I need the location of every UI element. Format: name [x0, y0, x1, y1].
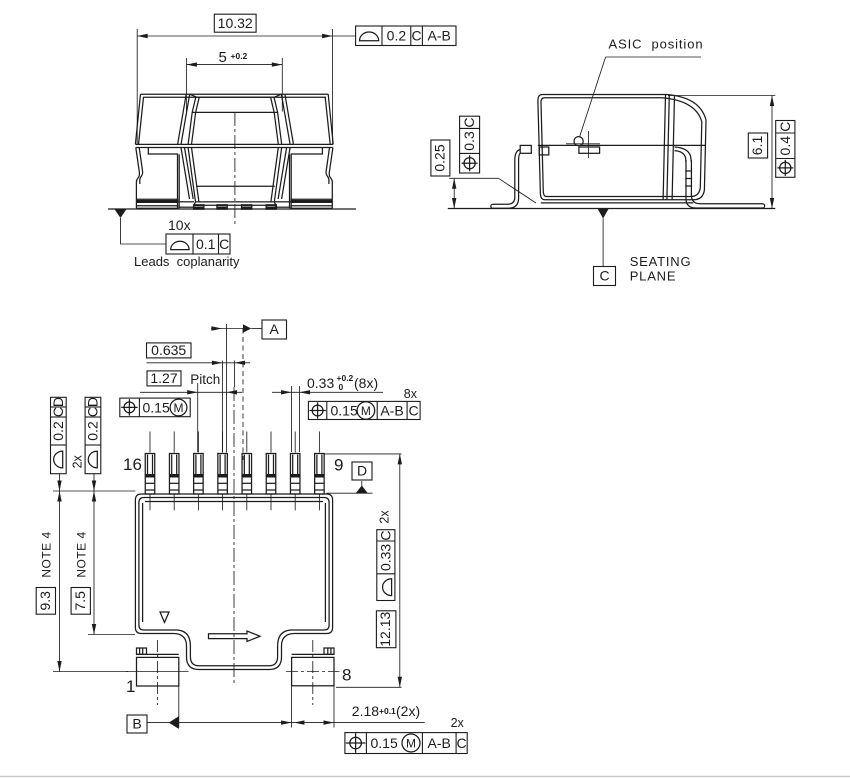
svg-text:NOTE 4: NOTE 4: [74, 531, 88, 577]
svg-text:8: 8: [342, 666, 351, 685]
svg-text:C: C: [599, 268, 609, 284]
svg-text:D: D: [50, 397, 66, 407]
svg-text:A-B: A-B: [428, 735, 451, 751]
svg-text:C: C: [777, 122, 793, 132]
svg-text:0.2: 0.2: [50, 421, 66, 441]
svg-text:0: 0: [339, 382, 344, 392]
svg-text:D: D: [357, 463, 367, 479]
svg-text:2x: 2x: [451, 716, 465, 730]
svg-text:B: B: [132, 716, 141, 732]
svg-text:0.635: 0.635: [151, 342, 186, 358]
svg-text:0.2: 0.2: [387, 28, 407, 44]
svg-text:2x: 2x: [70, 454, 84, 468]
svg-text:PLANE: PLANE: [630, 269, 677, 284]
svg-text:M: M: [361, 404, 371, 418]
svg-text:C: C: [412, 28, 422, 44]
svg-text:C: C: [50, 407, 66, 417]
svg-text:0.15: 0.15: [331, 403, 358, 419]
svg-text:0.3: 0.3: [461, 131, 477, 151]
svg-text:0.15: 0.15: [371, 735, 398, 751]
svg-text:5: 5: [219, 49, 227, 66]
svg-text:NOTE 4: NOTE 4: [40, 531, 54, 577]
svg-text:M: M: [406, 737, 416, 751]
svg-text:0.33: 0.33: [307, 375, 334, 391]
svg-text:0.1: 0.1: [196, 236, 216, 252]
svg-text:C: C: [461, 117, 477, 127]
svg-text:7.5: 7.5: [72, 591, 88, 611]
svg-text:(8x): (8x): [354, 375, 378, 391]
svg-text:C: C: [409, 403, 419, 419]
svg-text:2.18: 2.18: [352, 703, 379, 719]
svg-text:16: 16: [123, 455, 142, 474]
svg-text:8x: 8x: [404, 387, 418, 401]
svg-text:0.33: 0.33: [378, 544, 394, 571]
svg-text:M: M: [174, 401, 184, 415]
svg-text:0.15: 0.15: [143, 400, 170, 416]
svg-text:6.1: 6.1: [749, 136, 765, 156]
svg-text:10x: 10x: [168, 217, 191, 233]
svg-text:C: C: [219, 236, 229, 252]
svg-text:+0.2: +0.2: [231, 51, 248, 61]
svg-text:Pitch: Pitch: [190, 372, 220, 387]
svg-text:A-B: A-B: [428, 28, 451, 44]
svg-text:SEATING: SEATING: [630, 254, 692, 269]
svg-text:0.25: 0.25: [432, 144, 448, 171]
svg-text:10.32: 10.32: [218, 15, 253, 31]
svg-text:Leads coplanarity: Leads coplanarity: [134, 254, 240, 269]
svg-text:1: 1: [126, 677, 135, 696]
svg-text:A-B: A-B: [380, 403, 403, 419]
svg-text:+0.1: +0.1: [379, 706, 396, 716]
svg-text:C: C: [378, 530, 394, 540]
svg-text:C: C: [457, 735, 467, 751]
svg-text:9: 9: [334, 456, 343, 475]
svg-text:9.3: 9.3: [37, 591, 53, 611]
svg-text:2x: 2x: [378, 510, 392, 524]
svg-text:0.4: 0.4: [777, 136, 793, 156]
svg-text:ASIC position: ASIC position: [609, 37, 704, 52]
svg-text:A: A: [270, 321, 280, 337]
svg-text:(2x): (2x): [396, 703, 420, 719]
svg-text:1.27: 1.27: [150, 370, 177, 386]
svg-text:12.13: 12.13: [377, 611, 393, 646]
